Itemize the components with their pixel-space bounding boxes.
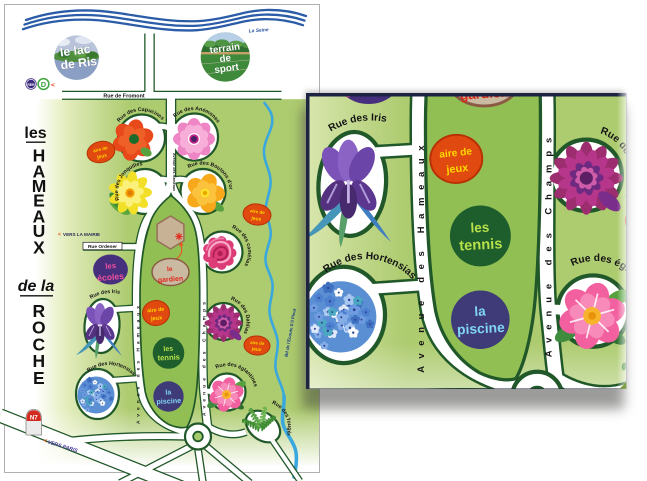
svg-text:N7: N7 xyxy=(30,414,38,421)
svg-text:<: < xyxy=(51,82,55,89)
svg-text:E: E xyxy=(33,368,45,388)
svg-text:le: le xyxy=(167,266,173,273)
svg-text:jeux: jeux xyxy=(251,346,262,353)
svg-text:tennis: tennis xyxy=(157,352,180,362)
svg-text:<: < xyxy=(58,232,61,238)
svg-text:Rue de Fromont: Rue de Fromont xyxy=(103,93,145,99)
svg-text:Rue Ordener: Rue Ordener xyxy=(88,244,117,250)
svg-text:RER: RER xyxy=(27,83,35,87)
svg-text:de la: de la xyxy=(18,278,55,295)
svg-text:les: les xyxy=(24,125,46,142)
svg-text:D: D xyxy=(41,80,47,89)
svg-text:X: X xyxy=(33,237,45,257)
svg-text:Avenue des Hameaux: Avenue des Hameaux xyxy=(172,153,176,191)
svg-text:piscine: piscine xyxy=(156,396,181,406)
svg-text:VERS LA MAIRIE: VERS LA MAIRIE xyxy=(63,232,100,237)
svg-text:les: les xyxy=(105,261,117,271)
